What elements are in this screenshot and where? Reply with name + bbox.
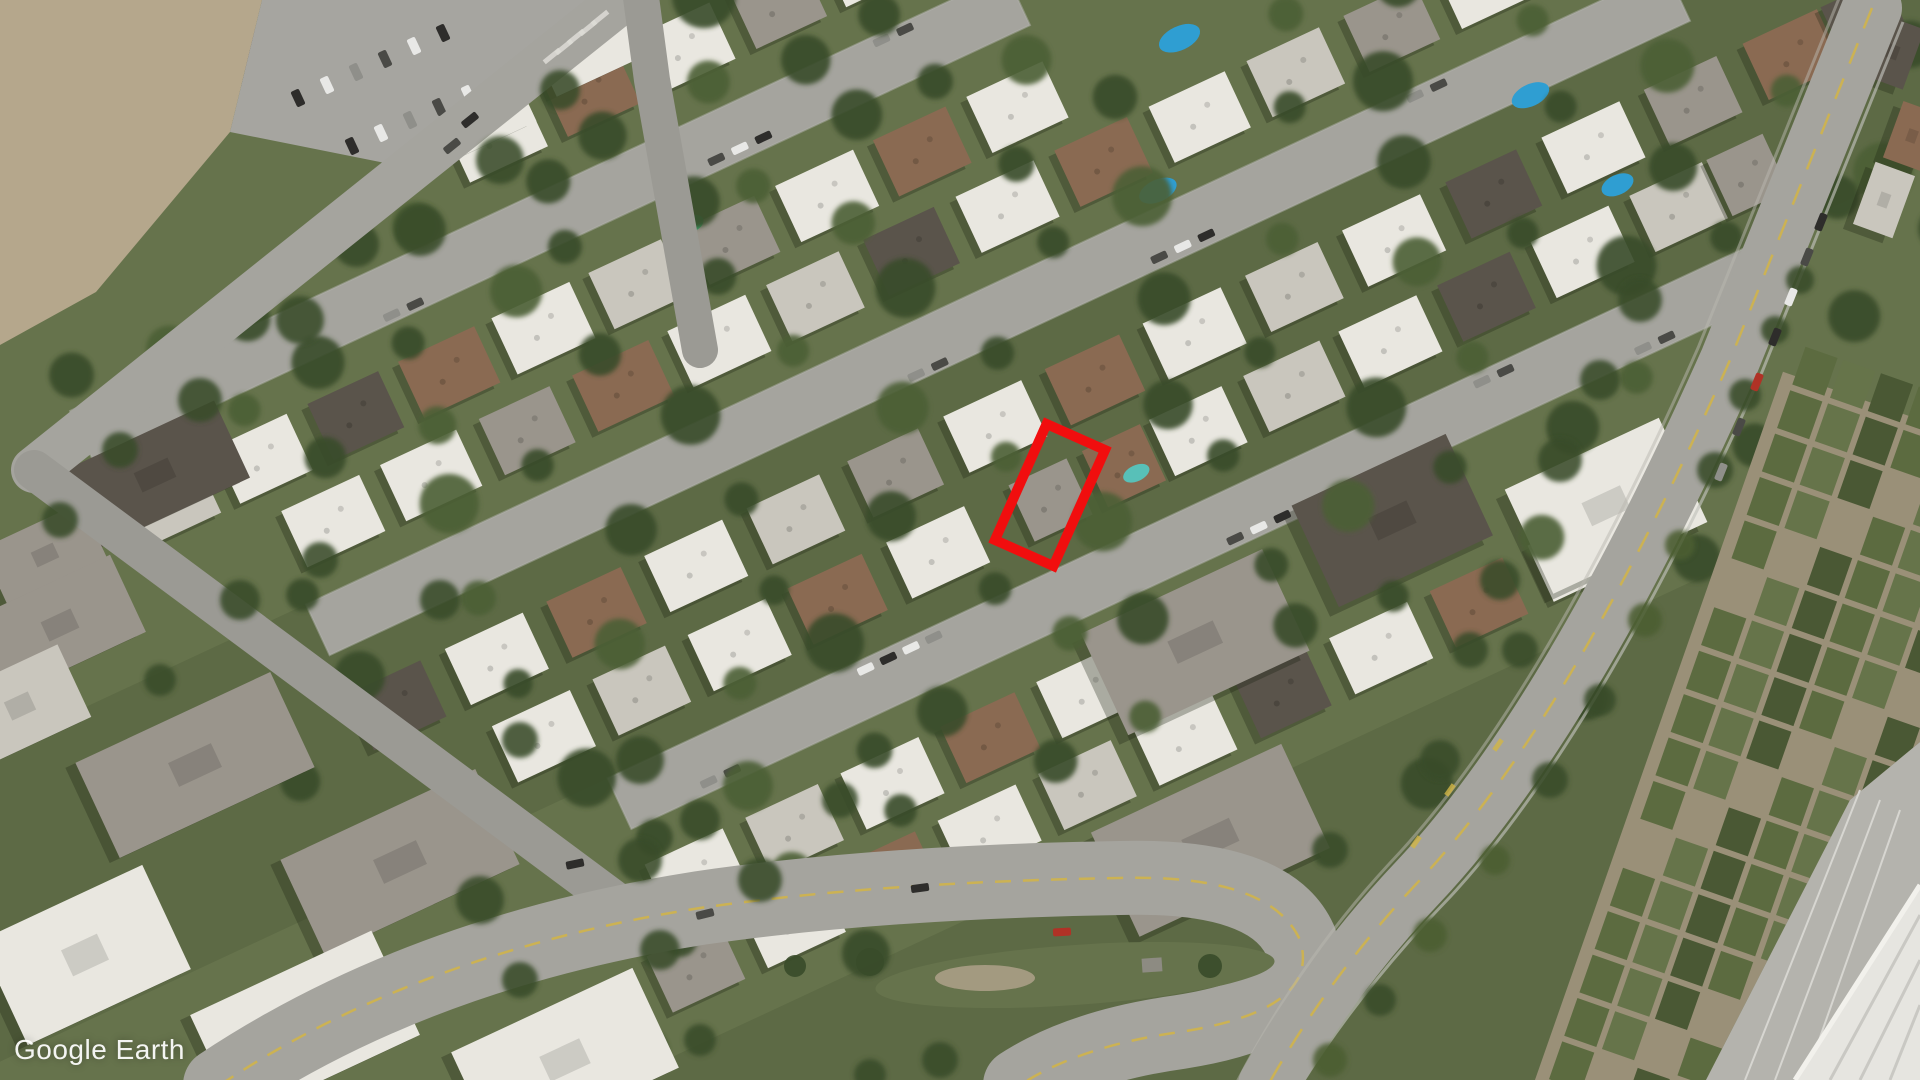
tree-canopy — [1584, 684, 1616, 716]
tree-canopy — [420, 580, 460, 620]
tree-canopy — [1364, 984, 1396, 1016]
tree-canopy — [1532, 762, 1568, 798]
tree-canopy — [1198, 954, 1222, 978]
aerial-imagery-canvas[interactable] — [0, 0, 1920, 1080]
google-earth-watermark: Google Earth — [14, 1034, 185, 1066]
tree-canopy — [1538, 438, 1582, 482]
tree-canopy — [1580, 360, 1620, 400]
dirt-patch — [935, 965, 1035, 991]
tree-canopy — [220, 580, 260, 620]
tree-canopy — [1452, 632, 1488, 668]
tree-canopy — [784, 955, 806, 977]
tree-canopy — [856, 948, 884, 976]
tree-canopy — [616, 736, 664, 784]
tree-canopy — [144, 664, 176, 696]
tree-canopy — [1665, 530, 1695, 560]
tree-canopy — [684, 1024, 716, 1056]
tree-canopy — [640, 930, 680, 970]
utility-shed — [1142, 957, 1163, 972]
tree-canopy — [502, 962, 538, 998]
tree-canopy — [102, 432, 138, 468]
tree-canopy — [1480, 560, 1520, 600]
tree-canopy — [1697, 452, 1733, 488]
tree-canopy — [1313, 1043, 1347, 1077]
tree-canopy — [540, 70, 580, 110]
tree-canopy — [302, 542, 338, 578]
tree-canopy — [1502, 632, 1538, 668]
tree-canopy — [394, 204, 446, 256]
tree-canopy — [618, 838, 662, 882]
tree-canopy — [1413, 918, 1447, 952]
car — [1053, 928, 1071, 937]
tree-canopy — [502, 722, 538, 758]
tree-canopy — [1420, 740, 1460, 780]
tree-canopy — [738, 858, 782, 902]
tree-canopy — [1628, 603, 1662, 637]
tree-canopy — [276, 296, 324, 344]
tree-canopy — [1312, 832, 1348, 868]
tree-canopy — [822, 782, 858, 818]
tree-canopy — [178, 378, 222, 422]
tree-canopy — [42, 502, 78, 538]
google-earth-viewport[interactable]: Google Earth — [0, 0, 1920, 1080]
tree-canopy — [476, 136, 524, 184]
tree-canopy — [1618, 278, 1662, 322]
tree-canopy — [1480, 845, 1510, 875]
tree-canopy — [456, 876, 504, 924]
tree-canopy — [922, 1042, 958, 1078]
tree-canopy — [680, 800, 720, 840]
